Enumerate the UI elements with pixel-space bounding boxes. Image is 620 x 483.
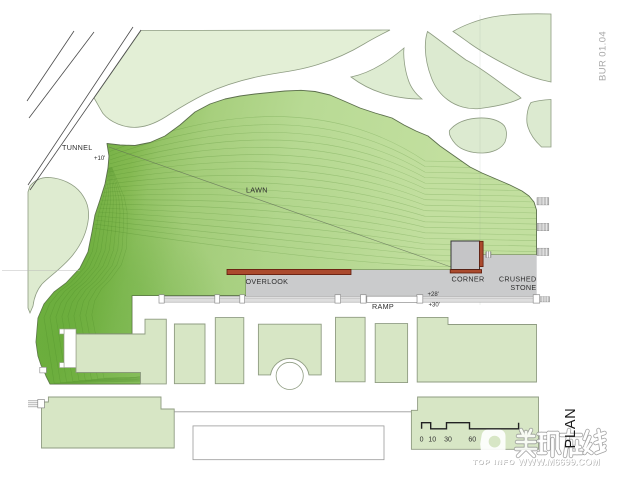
svg-text:OVERLOOK: OVERLOOK: [246, 277, 289, 286]
svg-text:10: 10: [428, 437, 436, 444]
svg-text:WWW.M6699.COM: WWW.M6699.COM: [518, 456, 600, 467]
svg-text:BUR 01.04: BUR 01.04: [598, 31, 609, 81]
svg-text:30: 30: [444, 437, 452, 444]
svg-text:RAMP: RAMP: [372, 302, 394, 311]
svg-text:PLAN: PLAN: [563, 407, 579, 448]
svg-text:LAWN: LAWN: [246, 186, 268, 195]
svg-text:TUNNEL: TUNNEL: [62, 143, 93, 152]
svg-text:TOP INFO: TOP INFO: [473, 457, 516, 466]
svg-text:+10': +10': [94, 156, 105, 162]
svg-text:+30': +30': [429, 303, 440, 309]
svg-text:+28': +28': [428, 292, 439, 298]
svg-text:60: 60: [468, 437, 476, 444]
svg-text:CORNER: CORNER: [452, 275, 485, 284]
svg-text:STONE: STONE: [510, 283, 536, 292]
svg-text:0: 0: [420, 437, 424, 444]
